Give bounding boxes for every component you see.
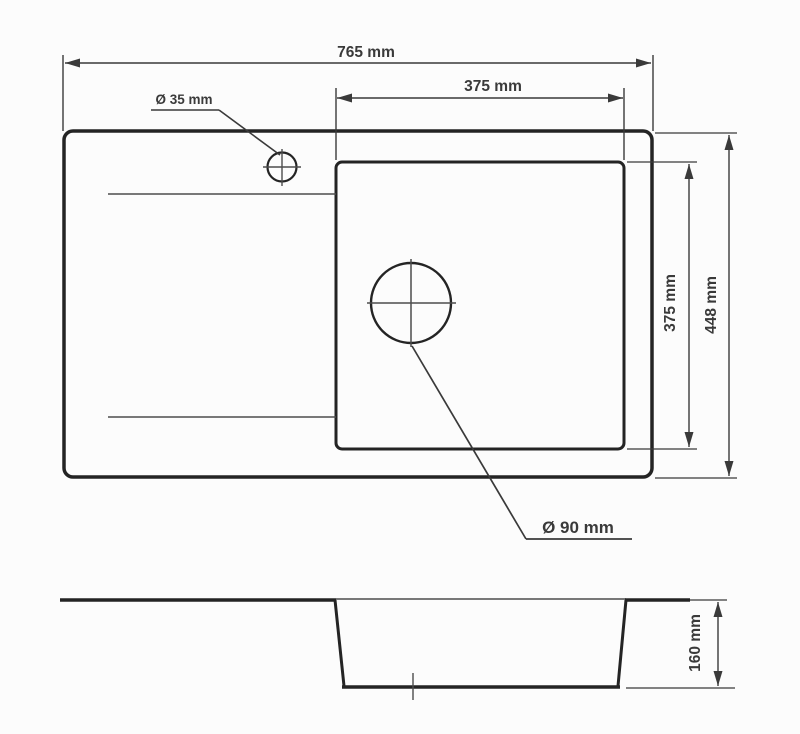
drain-hole-callout: Ø 90 mm (412, 346, 632, 539)
drawing-svg: 765 mm 375 mm 375 mm 448 mm Ø 35 mm Ø 90… (0, 0, 800, 734)
faucet-hole-icon (263, 149, 301, 186)
sink-outline (64, 131, 652, 477)
faucet-hole-callout: Ø 35 mm (151, 92, 280, 155)
bowl-depth-label: 160 mm (687, 614, 704, 672)
bowl-width-label: 375 mm (464, 78, 522, 95)
drain-hole-label: Ø 90 mm (542, 518, 614, 537)
bowl-outline (336, 162, 624, 449)
dimension-bowl-height: 375 mm (627, 162, 697, 449)
dimension-bowl-width: 375 mm (336, 78, 624, 160)
faucet-hole-label: Ø 35 mm (155, 92, 212, 107)
section-bowl-wall-left (335, 600, 344, 686)
dimension-overall-width: 765 mm (63, 44, 653, 131)
bowl-height-label: 375 mm (662, 274, 679, 332)
overall-depth-label: 448 mm (703, 276, 720, 334)
overall-width-label: 765 mm (337, 44, 395, 61)
dimension-bowl-depth: 160 mm (626, 600, 735, 688)
section-view (60, 599, 690, 700)
section-bowl-wall-right (618, 600, 626, 686)
top-view (64, 131, 652, 477)
drain-hole-icon (367, 259, 456, 347)
sink-technical-drawing: 765 mm 375 mm 375 mm 448 mm Ø 35 mm Ø 90… (0, 0, 800, 734)
